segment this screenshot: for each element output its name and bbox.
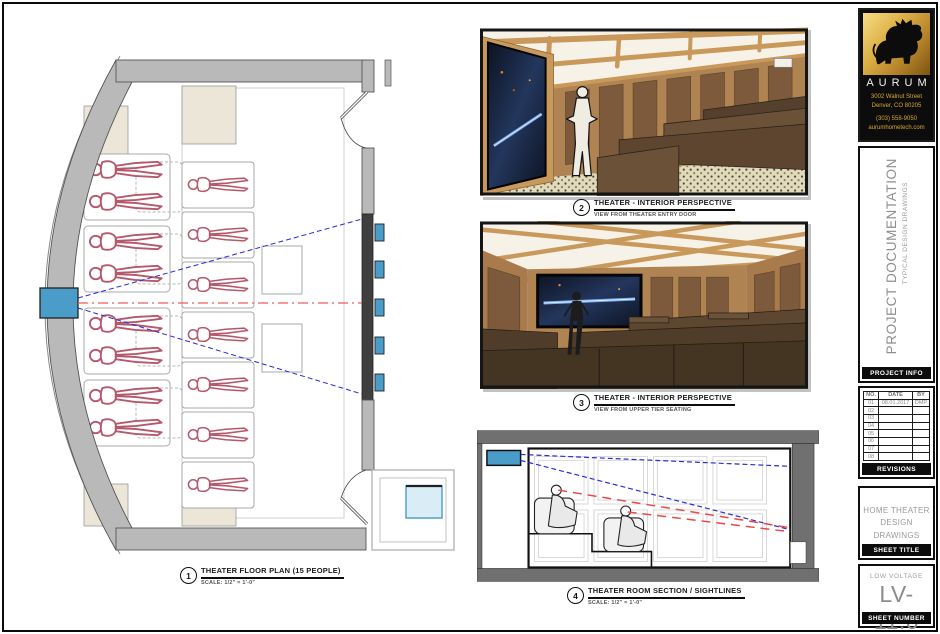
address-line2: Denver, CO 80205: [860, 102, 933, 111]
revision-cell: 06: [864, 438, 878, 445]
project-info-subtitle: TYPICAL DESIGN DRAWINGS: [902, 182, 909, 284]
logo-gold-field: [863, 13, 930, 75]
revision-cell: [879, 407, 912, 414]
callout-number-badge: 3: [573, 394, 590, 411]
screen-pocket: [790, 542, 806, 564]
revision-cell: 01: [864, 400, 878, 407]
sheet-title-block: HOME THEATER DESIGN DRAWINGS SHEET TITLE: [858, 486, 935, 560]
sheet-title-text: HOME THEATER DESIGN DRAWINGS: [860, 505, 933, 542]
revision-cell: 03: [864, 415, 878, 422]
revision-cell: [879, 446, 912, 453]
revision-cell: [913, 438, 929, 445]
revision-header-cell: BY: [913, 392, 929, 399]
screen: [362, 214, 373, 400]
floor-plan-drawing: [14, 56, 459, 556]
projector: [40, 288, 78, 318]
revision-cell: 04: [864, 423, 878, 430]
movie-screen: [482, 36, 554, 195]
callout-subtitle: VIEW FROM THEATER ENTRY DOOR: [594, 212, 735, 218]
sheet-number: LV-11.0: [860, 581, 933, 634]
revision-cell: [879, 438, 912, 445]
callout-perspective-upper: 3 THEATER - INTERIOR PERSPECTIVE VIEW FR…: [573, 393, 735, 413]
revision-header-cell: DATE: [879, 392, 912, 399]
revision-cell: 08: [864, 453, 878, 460]
revision-cell: 02: [864, 407, 878, 414]
callout-section: 4 THEATER ROOM SECTION / SIGHTLINES SCAL…: [567, 586, 745, 606]
revision-cell: [913, 453, 929, 460]
callout-title: THEATER FLOOR PLAN (15 PEOPLE): [201, 566, 344, 579]
sheet-title-label: SHEET TITLE: [862, 544, 931, 556]
drawing-sheet: 1 THEATER FLOOR PLAN (15 PEOPLE) SCALE: …: [0, 0, 940, 634]
sheet-title-line1: HOME THEATER: [860, 505, 933, 517]
callout-title: THEATER - INTERIOR PERSPECTIVE: [594, 198, 735, 211]
projector: [487, 450, 521, 465]
revision-cell: DMP: [913, 400, 929, 407]
speakers: [375, 224, 384, 391]
callout-number-badge: 1: [180, 567, 197, 584]
vestibule: [372, 470, 454, 550]
revisions-label: REVISIONS: [862, 463, 931, 475]
revision-cell: [879, 415, 912, 422]
perspective-upper-tier-view: [480, 221, 808, 389]
bottom-wall: [116, 528, 366, 550]
project-info-title: PROJECT DOCUMENTATION: [884, 158, 899, 354]
revision-cell: [879, 430, 912, 437]
revision-cell: 08.01.2017: [879, 400, 912, 407]
revision-cell: [913, 423, 929, 430]
perspective-entry-view: [480, 27, 808, 197]
project-info-block: PROJECT DOCUMENTATION TYPICAL DESIGN DRA…: [858, 146, 935, 383]
callout-subtitle: SCALE: 1/2" = 1'-0": [201, 580, 344, 586]
callout-title: THEATER - INTERIOR PERSPECTIVE: [594, 393, 735, 406]
revision-header-cell: NO.: [864, 392, 878, 399]
front-tier-seating: [182, 162, 254, 508]
callout-number-badge: 2: [573, 199, 590, 216]
revision-cell: [879, 453, 912, 460]
callout-perspective-entry: 2 THEATER - INTERIOR PERSPECTIVE VIEW FR…: [573, 198, 735, 218]
callout-title: THEATER ROOM SECTION / SIGHTLINES: [588, 586, 745, 599]
revisions-block: NO.DATEBY0108.01.2017DMP02030405060708 R…: [858, 386, 935, 479]
company-website: aurumhometech.com: [860, 124, 933, 133]
revision-cell: 07: [864, 446, 878, 453]
callout-subtitle: VIEW FROM UPPER TIER SEATING: [594, 407, 735, 413]
company-phone: (303) 558-9050: [860, 115, 933, 124]
wall-vent: [774, 58, 792, 67]
revision-cell: [913, 430, 929, 437]
sheet-title-line2: DESIGN DRAWINGS: [860, 517, 933, 542]
equipment-rack: [406, 486, 442, 518]
revision-cell: [913, 415, 929, 422]
company-name: AURUM: [860, 77, 933, 89]
sheet-number-label: SHEET NUMBER: [862, 612, 931, 624]
company-logo-block: AURUM 3002 Walnut Street Denver, CO 8020…: [858, 8, 935, 142]
top-wall: [116, 60, 366, 82]
callout-number-badge: 4: [567, 587, 584, 604]
bull-icon: [870, 18, 924, 70]
address-line1: 3002 Walnut Street: [860, 93, 933, 102]
project-info-label: PROJECT INFO: [862, 367, 931, 379]
sheet-number-block: LOW VOLTAGE LV-11.0 SHEET NUMBER: [858, 564, 935, 628]
section-drawing: [477, 430, 819, 582]
revision-cell: [913, 407, 929, 414]
callout-floor-plan: 1 THEATER FLOOR PLAN (15 PEOPLE) SCALE: …: [180, 566, 344, 586]
revision-cell: [879, 423, 912, 430]
callout-subtitle: SCALE: 1/2" = 1'-0": [588, 600, 745, 606]
movie-screen: [538, 275, 641, 327]
company-address: 3002 Walnut Street Denver, CO 80205 (303…: [860, 93, 933, 133]
revision-cell: 05: [864, 430, 878, 437]
sheet-category: LOW VOLTAGE: [860, 573, 933, 580]
revision-cell: [913, 446, 929, 453]
revisions-table: NO.DATEBY0108.01.2017DMP02030405060708: [863, 391, 930, 461]
